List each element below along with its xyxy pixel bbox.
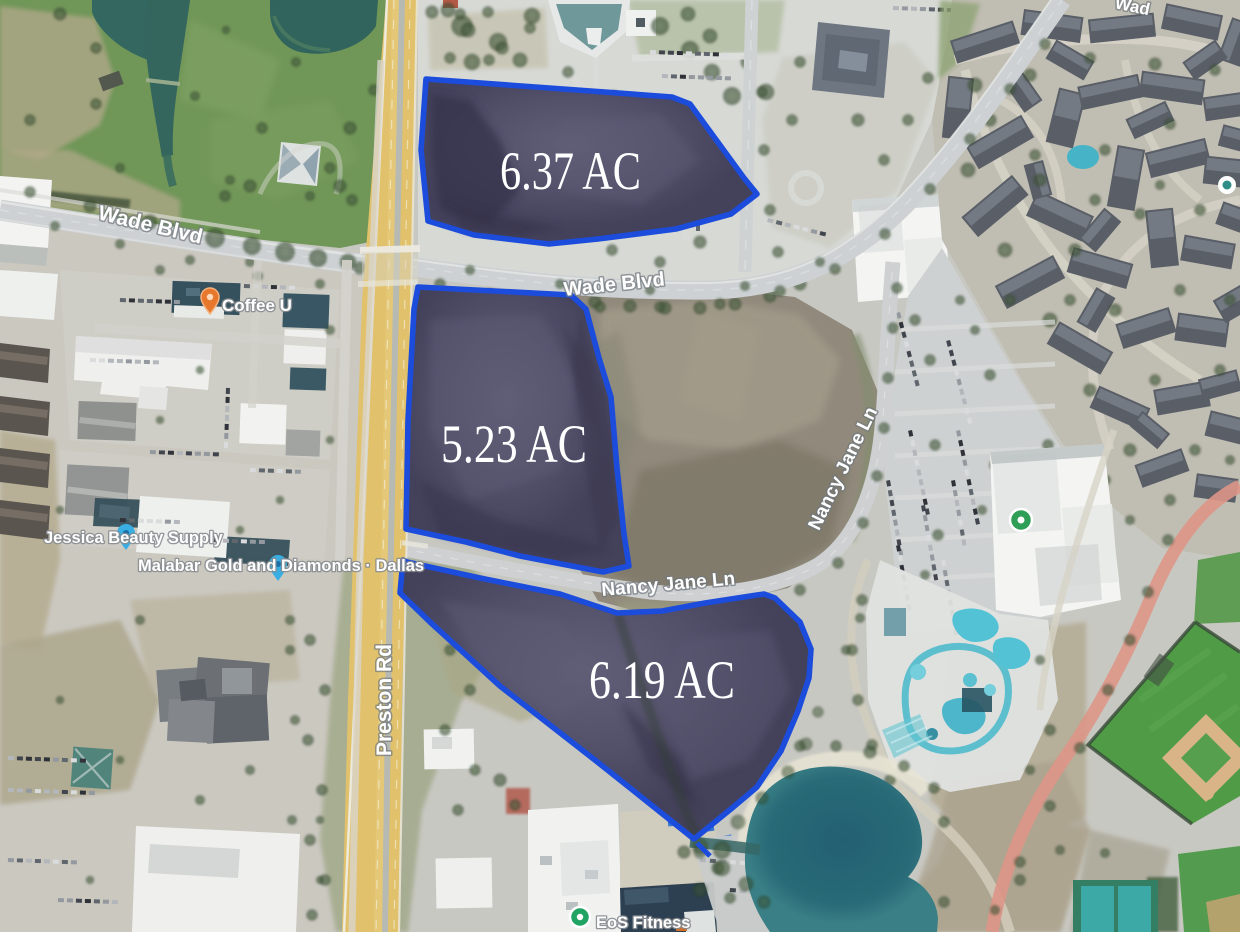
svg-text:6.19 AC: 6.19 AC (589, 650, 735, 710)
svg-text:6.37 AC: 6.37 AC (500, 141, 641, 201)
svg-text:Jessica Beauty Supply: Jessica Beauty Supply (44, 529, 224, 547)
svg-text:Coffee U: Coffee U (222, 296, 292, 315)
svg-text:Malabar Gold and Diamonds · Da: Malabar Gold and Diamonds · Dallas (138, 557, 424, 575)
svg-text:EoS Fitness: EoS Fitness (596, 914, 690, 932)
svg-text:5.23 AC: 5.23 AC (441, 414, 587, 474)
svg-text:Preston Rd: Preston Rd (373, 644, 396, 756)
